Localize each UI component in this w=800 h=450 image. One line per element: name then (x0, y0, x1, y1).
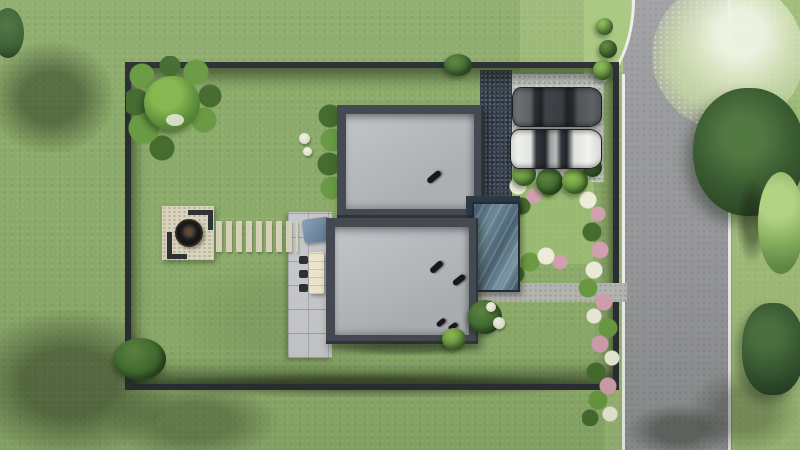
car-white (510, 129, 602, 169)
bush-cluster-northwest (126, 56, 228, 162)
building-lower (326, 218, 478, 344)
bush-bottom-left-corner (114, 338, 166, 380)
entry-bush (593, 60, 613, 80)
white-sphere (299, 133, 310, 144)
side-tree (758, 172, 800, 274)
tree-shadow-top-left (0, 40, 116, 155)
entry-bush (599, 40, 617, 58)
white-sphere (303, 147, 312, 156)
flower-hedge-south (582, 294, 630, 426)
car-dark (512, 87, 602, 127)
light-stone-patch (166, 114, 184, 126)
building-upper (337, 105, 483, 218)
white-stone (493, 317, 505, 329)
building-upper-roof (346, 114, 474, 209)
glass-canopy (472, 202, 520, 292)
white-stone (486, 302, 496, 312)
stepping-path (216, 221, 298, 252)
bush (442, 328, 466, 350)
aerial-render-scene (0, 0, 800, 450)
entry-bush (596, 18, 613, 35)
bush (536, 168, 563, 195)
bush-bottom-right (742, 303, 800, 395)
bush-top-fence (444, 54, 472, 76)
building-lower-roof (335, 227, 469, 335)
